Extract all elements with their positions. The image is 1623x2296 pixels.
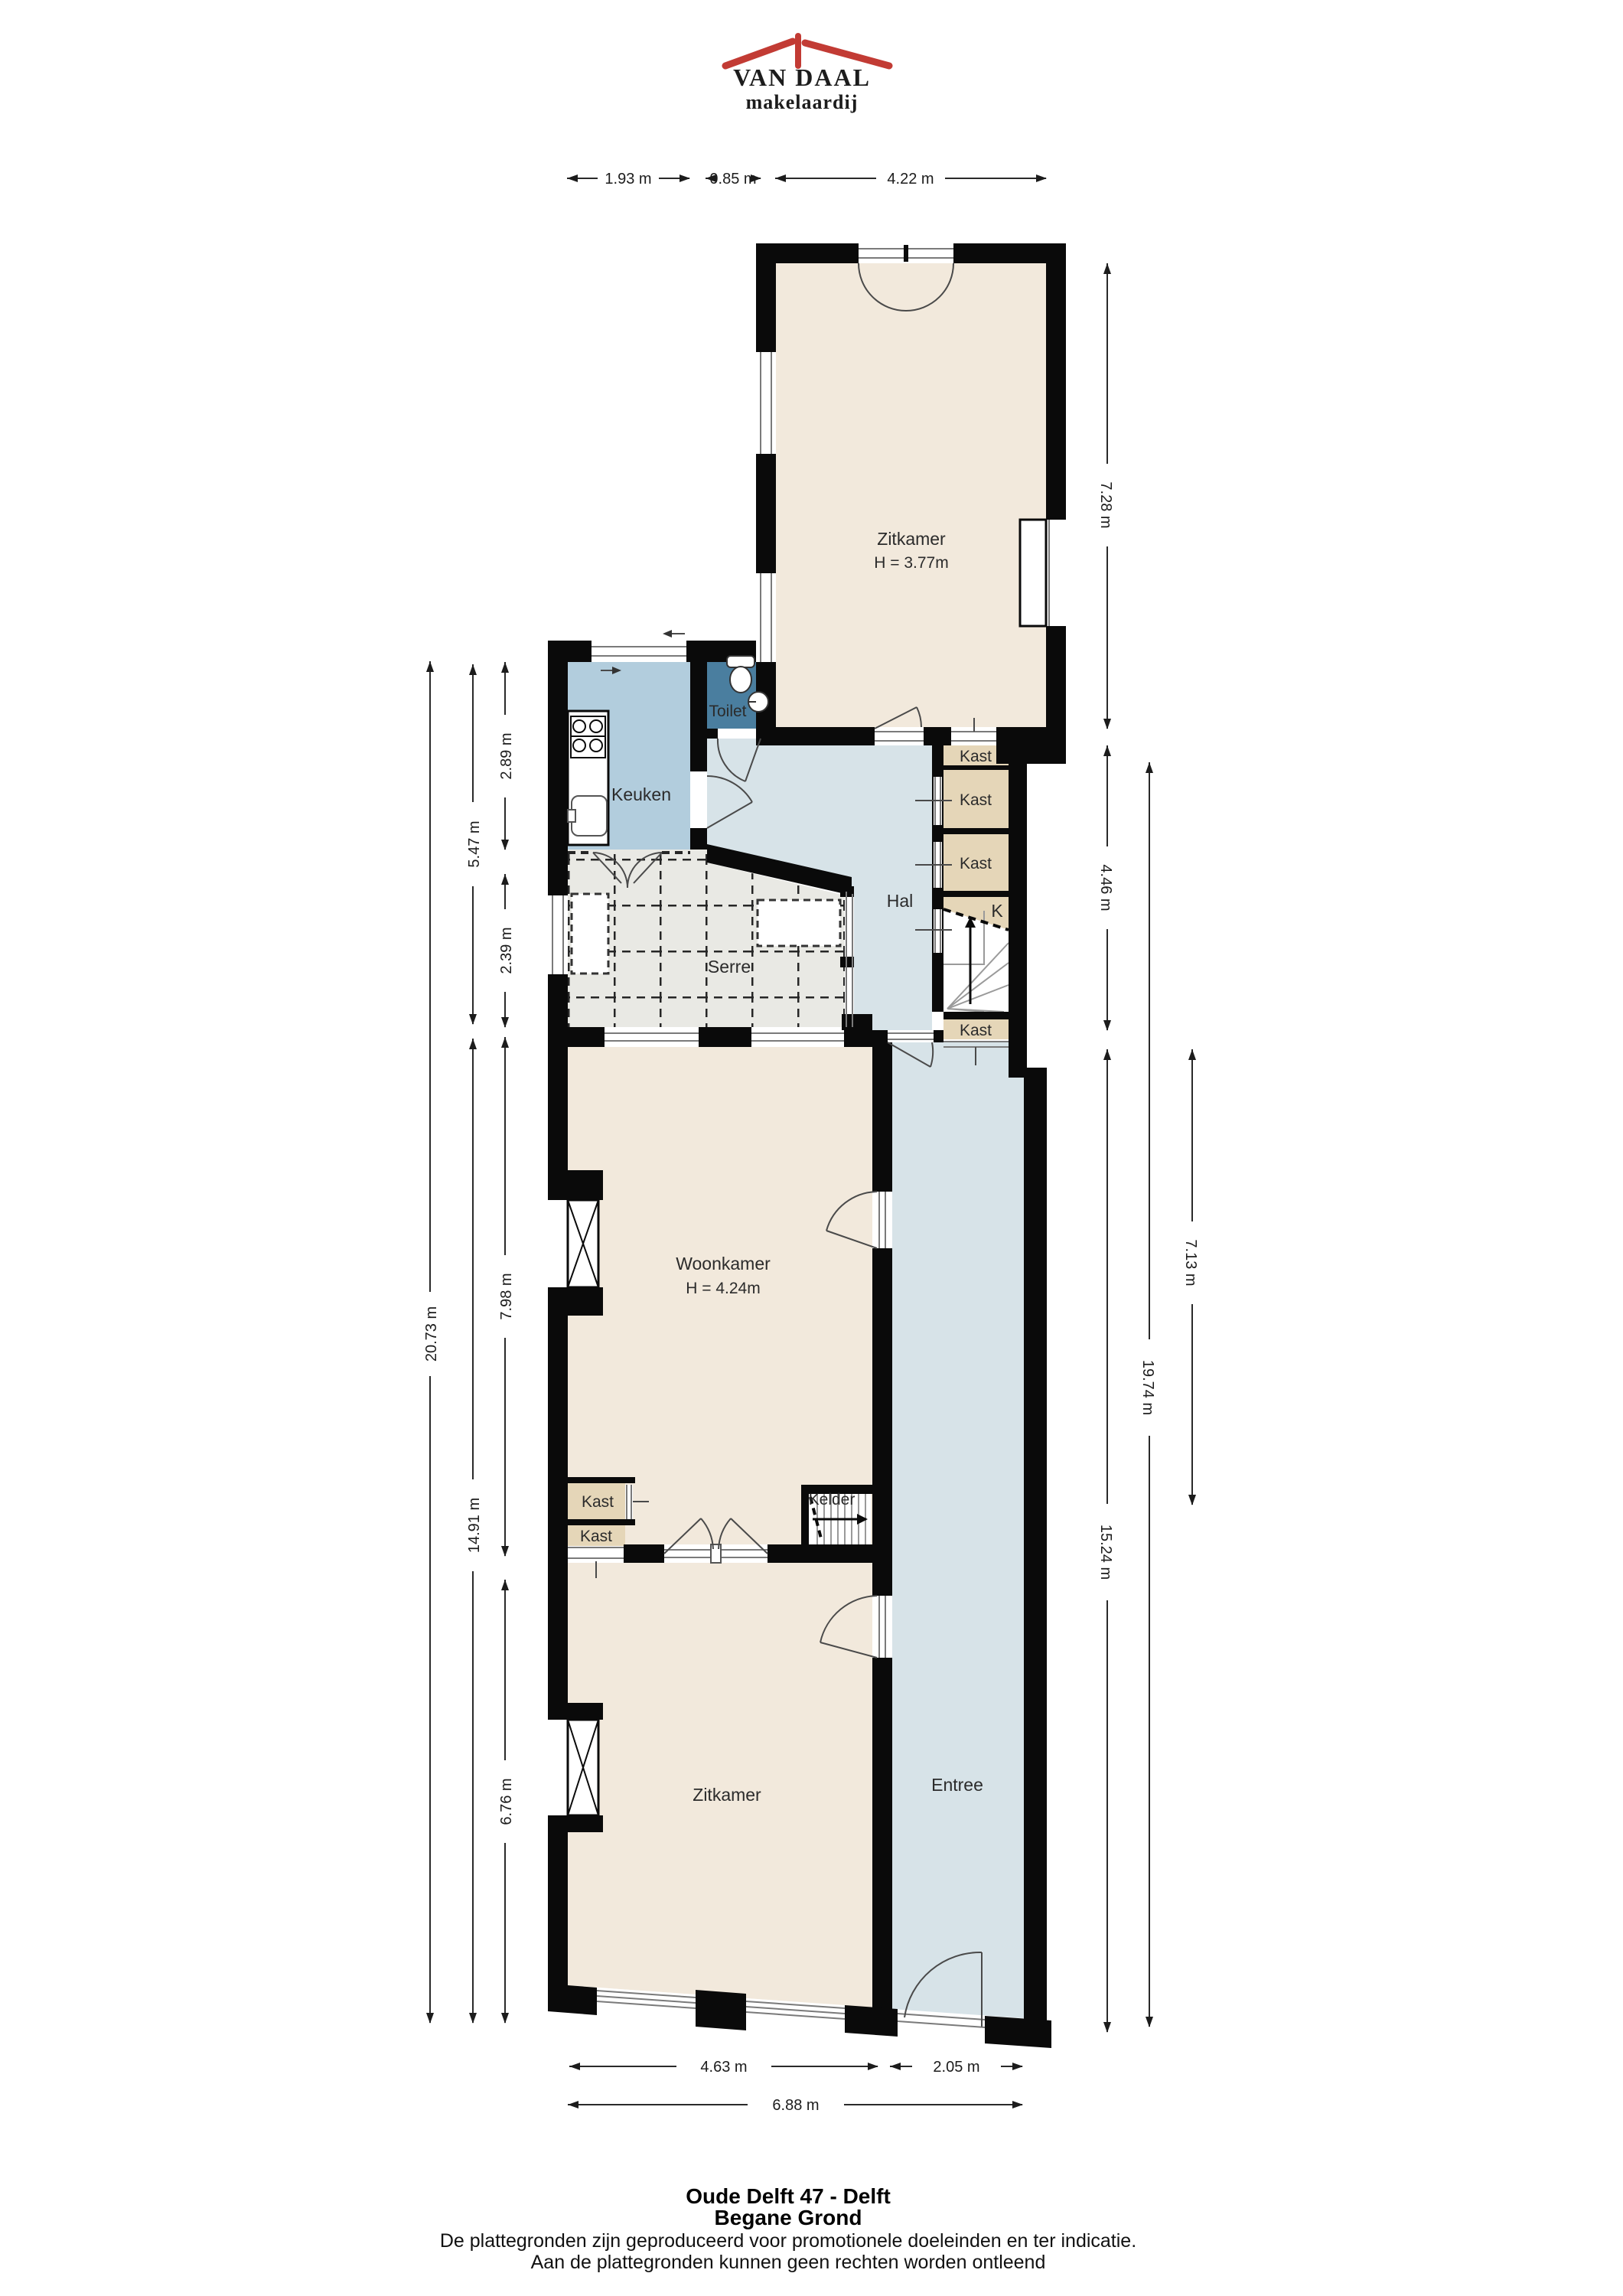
room-entree-floor bbox=[892, 1042, 1024, 2018]
footer-floor: Begane Grond bbox=[715, 2206, 862, 2229]
dim-right-zitkamer-boven: 7.28 m bbox=[1097, 481, 1114, 528]
dim-left-total: 20.73 m bbox=[423, 1306, 440, 1362]
room-ceiling-zitkamer-boven: H = 3.77m bbox=[874, 554, 948, 572]
room-label-entree: Entree bbox=[931, 1775, 983, 1795]
dim-right-entree: 15.24 m bbox=[1097, 1525, 1114, 1580]
room-label-keuken: Keuken bbox=[611, 784, 671, 804]
dim-right-total: 19.74 m bbox=[1139, 1360, 1156, 1415]
logo-tagline: makelaardij bbox=[746, 91, 859, 113]
logo-name: VAN DAAL bbox=[733, 64, 871, 91]
dim-bottom-entree: 2.05 m bbox=[933, 2059, 979, 2076]
dim-right-hal: 4.46 m bbox=[1097, 864, 1114, 911]
serre-panel-right bbox=[758, 900, 840, 946]
room-label-woonkamer: Woonkamer bbox=[676, 1254, 771, 1274]
toilet-tank-icon bbox=[727, 656, 754, 667]
dim-left-upper-section: 5.47 m bbox=[466, 820, 483, 867]
room-label-zitkamer-beneden: Zitkamer bbox=[693, 1785, 761, 1805]
room-label-kelder: Kelder bbox=[809, 1491, 855, 1508]
room-ceiling-woonkamer: H = 4.24m bbox=[686, 1280, 760, 1297]
serre-panel-left bbox=[572, 894, 608, 974]
dim-top-toilet: 0.85 m bbox=[709, 171, 756, 188]
kast2-label: Kast bbox=[960, 791, 992, 809]
toilet-bowl-icon bbox=[730, 667, 751, 693]
dim-bottom-total: 6.88 m bbox=[772, 2097, 819, 2114]
kitchen-fixtures bbox=[568, 711, 608, 845]
trapkast-label: K bbox=[991, 901, 1003, 921]
kastB-label: Kast bbox=[580, 1528, 612, 1545]
dim-left-serre: 2.39 m bbox=[498, 927, 515, 974]
dim-bottom-zitkamer: 4.63 m bbox=[700, 2059, 747, 2076]
dim-left-woonkamer: 7.98 m bbox=[498, 1273, 515, 1319]
dim-right-woonkamer: 7.13 m bbox=[1182, 1239, 1199, 1286]
footer-disclaimer-1: De plattegronden zijn geproduceerd voor … bbox=[440, 2230, 1136, 2252]
kastA-label: Kast bbox=[582, 1493, 614, 1511]
kast4-label: Kast bbox=[960, 1022, 992, 1039]
dim-left-lower-section: 14.91 m bbox=[466, 1498, 483, 1553]
room-label-toilet: Toilet bbox=[709, 703, 746, 720]
dim-top-zitkamer: 4.22 m bbox=[887, 171, 934, 188]
sink-icon bbox=[572, 796, 607, 836]
dim-top-keuken: 1.93 m bbox=[605, 171, 651, 188]
dim-left-keuken: 2.89 m bbox=[498, 732, 515, 779]
footer-disclaimer-2: Aan de plattegronden kunnen geen rechten… bbox=[531, 2252, 1046, 2273]
window-sill-box bbox=[1020, 520, 1046, 626]
kast3-label: Kast bbox=[960, 855, 992, 872]
room-zitkamer-boven-floor bbox=[776, 263, 1046, 727]
footer-address: Oude Delft 47 - Delft bbox=[686, 2184, 891, 2208]
room-label-serre: Serre bbox=[708, 957, 751, 977]
dim-left-zitkamer: 6.76 m bbox=[498, 1778, 515, 1825]
room-label-hal: Hal bbox=[887, 891, 914, 911]
kast1-label: Kast bbox=[960, 748, 992, 765]
room-label-zitkamer-boven: Zitkamer bbox=[877, 529, 946, 549]
